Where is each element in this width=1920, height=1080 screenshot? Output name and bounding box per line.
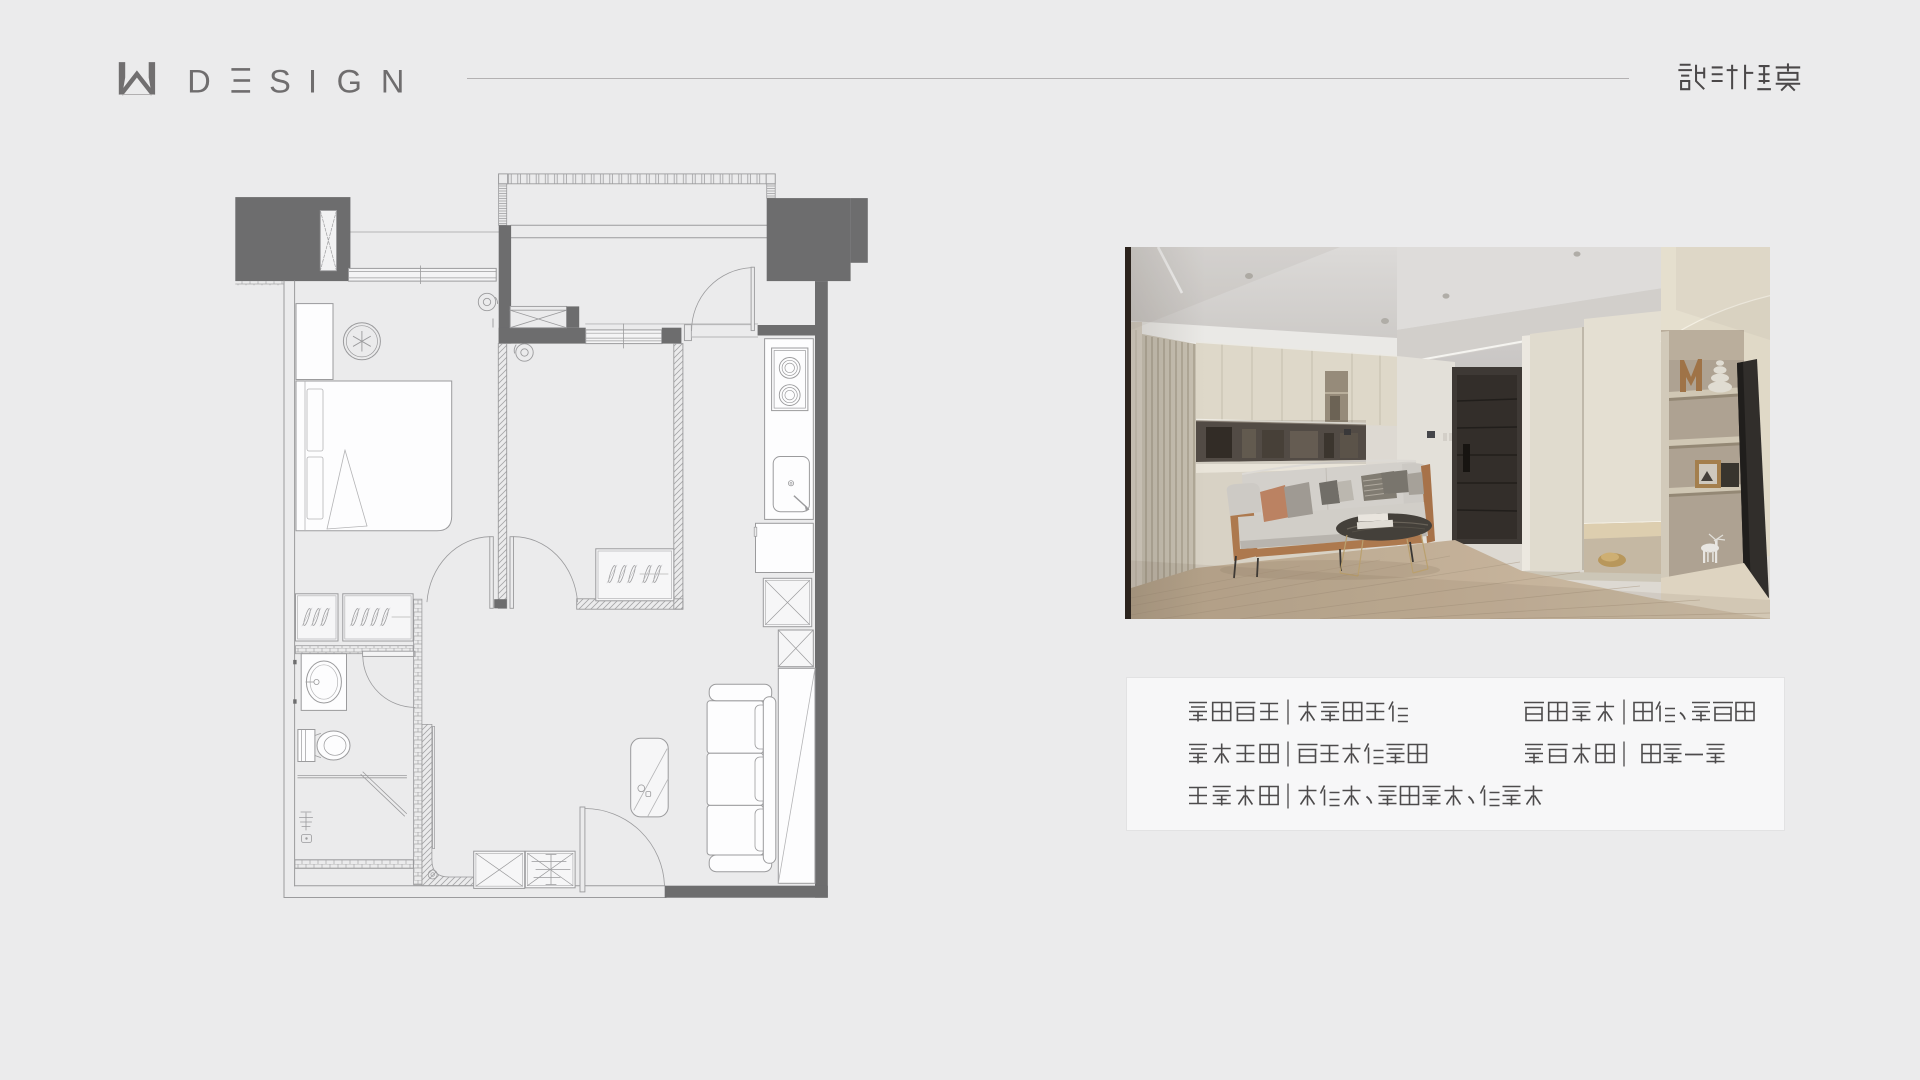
svg-text:G: G xyxy=(337,63,362,99)
svg-text:N: N xyxy=(381,63,404,99)
svg-text:D: D xyxy=(187,63,210,99)
svg-text:S: S xyxy=(269,63,291,99)
svg-text:I: I xyxy=(308,63,317,99)
